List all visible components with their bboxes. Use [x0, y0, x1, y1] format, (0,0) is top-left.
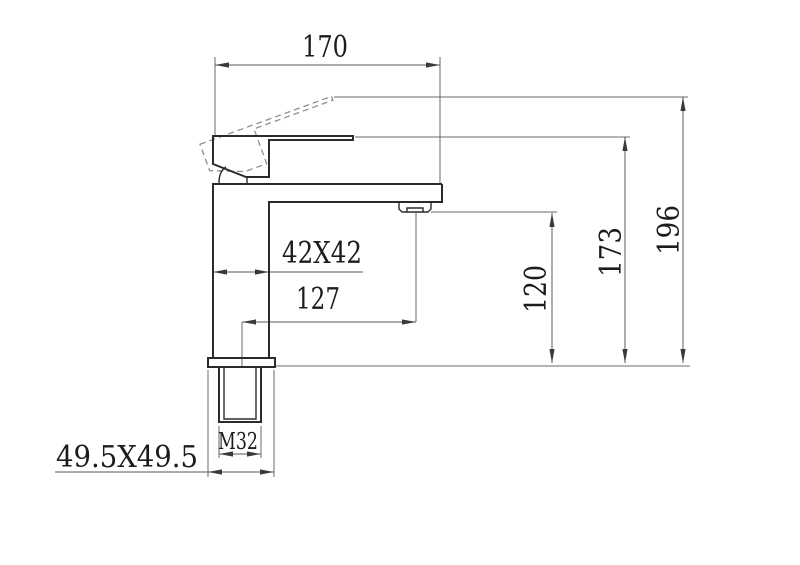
drawing-sheet: 170 42X42 127 120 173 196 M32 49.5X49.5 [0, 0, 800, 565]
handle-outline [213, 136, 353, 177]
dim-label-base-plate: 49.5X49.5 [56, 440, 198, 475]
dim-label-173: 173 [594, 227, 629, 277]
dim-label-170: 170 [302, 30, 348, 65]
dim-label-42x42: 42X42 [282, 236, 362, 271]
dim-label-120: 120 [519, 265, 554, 313]
dim-label-m32: M32 [218, 429, 258, 455]
dim-label-196: 196 [652, 205, 687, 255]
thread-shank-inner [224, 367, 256, 419]
dim-label-127: 127 [296, 282, 340, 317]
aerator-outline [399, 202, 431, 212]
faucet-technical-drawing: 170 42X42 127 120 173 196 M32 49.5X49.5 [0, 0, 800, 565]
thread-shank-outer [219, 367, 261, 422]
dimension-lines [55, 65, 683, 472]
